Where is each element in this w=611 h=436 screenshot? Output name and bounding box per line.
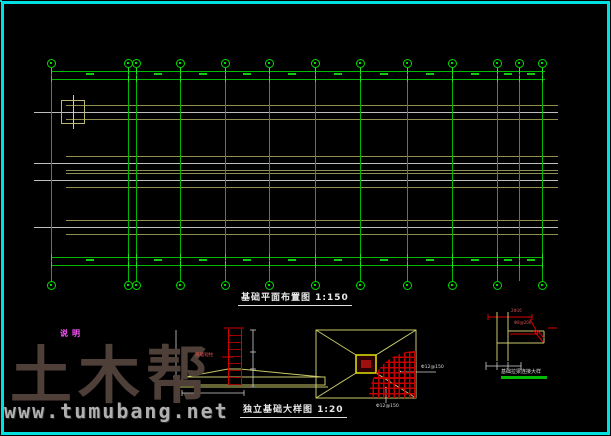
row-centerline: [34, 180, 558, 181]
dim-tick: [452, 254, 453, 260]
grid-line: [452, 66, 453, 281]
grid-line: [315, 66, 316, 281]
grid-bubble-top: [356, 59, 365, 68]
grid-bubble-bottom: [493, 281, 502, 290]
grid-bubble-top: [132, 59, 141, 68]
dim-tick: [360, 68, 361, 74]
dim-tick: [128, 262, 129, 268]
dim-tick: [452, 68, 453, 74]
grid-bubble-top: [176, 59, 185, 68]
top-bar-label: 2Φ16: [511, 308, 522, 313]
dim-tick: [225, 254, 226, 260]
dim-tick: [497, 254, 498, 260]
dim-tick: [51, 68, 52, 74]
dim-tick: [360, 254, 361, 260]
dim-tick: [225, 262, 226, 268]
grid-bubble-top: [311, 59, 320, 68]
dim-tick: [128, 68, 129, 74]
dim-tick: [225, 68, 226, 74]
grid-bubble-bottom: [132, 281, 141, 290]
dim-tick: [497, 262, 498, 268]
dim-tick: [269, 262, 270, 268]
dim-value: [504, 259, 512, 261]
dim-tick: [407, 68, 408, 74]
dim-tick: [136, 254, 137, 260]
grid-bubble-bottom: [448, 281, 457, 290]
rebar-label-2: Φ12@150: [376, 404, 399, 409]
dim-value: [199, 259, 207, 261]
title-block: [0, 0, 2, 2]
dim-tick: [180, 262, 181, 268]
grid-bubble-bottom: [356, 281, 365, 290]
dim-tick: [225, 76, 226, 82]
dim-tick: [542, 76, 543, 82]
dim-tick: [180, 254, 181, 260]
grid-line: [519, 66, 520, 281]
dim-value: [504, 73, 512, 75]
dim-value: [471, 259, 479, 261]
grid-bubble-bottom: [311, 281, 320, 290]
tie-beam: [66, 234, 558, 235]
dim-value: [380, 259, 388, 261]
dim-value: [154, 73, 162, 75]
dim-tick: [269, 254, 270, 260]
footing-centerline: [73, 95, 74, 129]
dim-tick: [519, 68, 520, 74]
dim-value: [471, 73, 479, 75]
dim-value: [86, 259, 94, 261]
grid-bubble-bottom: [538, 281, 547, 290]
dim-chain: [51, 257, 542, 258]
dim-tick: [452, 76, 453, 82]
dim-tick: [452, 262, 453, 268]
dim-value: [243, 259, 251, 261]
tie-beam: [66, 156, 558, 157]
dim-tick: [497, 68, 498, 74]
dim-tick: [407, 262, 408, 268]
grid-line: [542, 66, 543, 281]
grid-bubble-top: [493, 59, 502, 68]
dim-tick: [315, 68, 316, 74]
dim-chain: [51, 265, 542, 266]
grid-line: [128, 66, 129, 281]
plan-title: 基础平面布置图 1:150: [238, 290, 352, 306]
dim-value: [527, 73, 535, 75]
dim-tick: [315, 262, 316, 268]
grid-bubble-top: [538, 59, 547, 68]
dim-tick: [360, 76, 361, 82]
dim-tick: [180, 76, 181, 82]
row-centerline: [34, 163, 558, 164]
grid-line: [407, 66, 408, 281]
row-centerline: [34, 112, 558, 113]
cad-drawing-viewport: 基础平面布置图 1:150 独立基础大样图 1:20 基础短柱 Φ12@150 …: [0, 0, 611, 436]
grid-bubble-bottom: [176, 281, 185, 290]
grid-line: [360, 66, 361, 281]
grid-bubble-bottom: [221, 281, 230, 290]
grid-bubble-top: [221, 59, 230, 68]
dim-value: [86, 73, 94, 75]
rebar-label-1: Φ12@150: [421, 365, 444, 370]
dim-tick: [407, 76, 408, 82]
dim-tick: [519, 76, 520, 82]
tie-beam: [66, 170, 558, 171]
grid-line: [51, 66, 52, 281]
grid-bubble-top: [265, 59, 274, 68]
grid-bubble-top: [515, 59, 524, 68]
tie-beam: [66, 105, 558, 106]
grid-line: [180, 66, 181, 281]
dim-tick: [128, 254, 129, 260]
dim-tick: [542, 68, 543, 74]
dim-value: [243, 73, 251, 75]
tie-beam: [66, 220, 558, 221]
dim-value: [199, 73, 207, 75]
grid-bubble-bottom: [403, 281, 412, 290]
dim-tick: [407, 254, 408, 260]
dim-tick: [269, 68, 270, 74]
column-stub-label: 基础短柱: [195, 352, 213, 358]
grid-line: [136, 66, 137, 281]
dim-tick: [542, 262, 543, 268]
dim-value: [288, 259, 296, 261]
dim-value: [380, 73, 388, 75]
dim-tick: [136, 76, 137, 82]
connection-detail-title: 基础拉梁连接大样: [501, 368, 541, 375]
dim-value: [288, 73, 296, 75]
dim-tick: [497, 76, 498, 82]
grid-bubble-bottom: [265, 281, 274, 290]
row-centerline: [34, 227, 558, 228]
dim-tick: [180, 68, 181, 74]
dim-tick: [269, 76, 270, 82]
dim-tick: [51, 262, 52, 268]
grid-line: [269, 66, 270, 281]
dim-tick: [360, 262, 361, 268]
dim-value: [154, 259, 162, 261]
dim-tick: [51, 254, 52, 260]
dim-tick: [136, 262, 137, 268]
watermark-site: www.tumubang.net: [4, 399, 229, 423]
notes-title: 说明: [60, 328, 84, 339]
grid-bubble-bottom: [47, 281, 56, 290]
dim-tick: [315, 254, 316, 260]
dim-value: [426, 259, 434, 261]
tie-beam: [66, 119, 558, 120]
dim-tick: [51, 76, 52, 82]
dim-value: [426, 73, 434, 75]
stirrup-label: Φ8@200: [514, 320, 531, 325]
dim-tick: [315, 76, 316, 82]
dim-tick: [136, 68, 137, 74]
dim-chain: [51, 79, 545, 80]
section-detail-title: 独立基础大样图 1:20: [240, 402, 347, 418]
dim-value: [527, 259, 535, 261]
column-section-hatch: [228, 329, 242, 385]
dim-tick: [128, 76, 129, 82]
connection-title-underline: [501, 376, 547, 379]
grid-line: [497, 66, 498, 281]
dim-value: [334, 73, 342, 75]
grid-bubble-top: [47, 59, 56, 68]
dim-chain: [51, 71, 545, 72]
dim-tick: [519, 254, 520, 260]
dim-tick: [519, 262, 520, 268]
grid-bubble-top: [403, 59, 412, 68]
tie-beam: [66, 187, 558, 188]
grid-line: [225, 66, 226, 281]
watermark-brand: 土木帮: [10, 345, 214, 407]
dim-tick: [542, 254, 543, 260]
grid-bubble-top: [448, 59, 457, 68]
tie-beam: [66, 173, 558, 174]
dim-value: [334, 259, 342, 261]
